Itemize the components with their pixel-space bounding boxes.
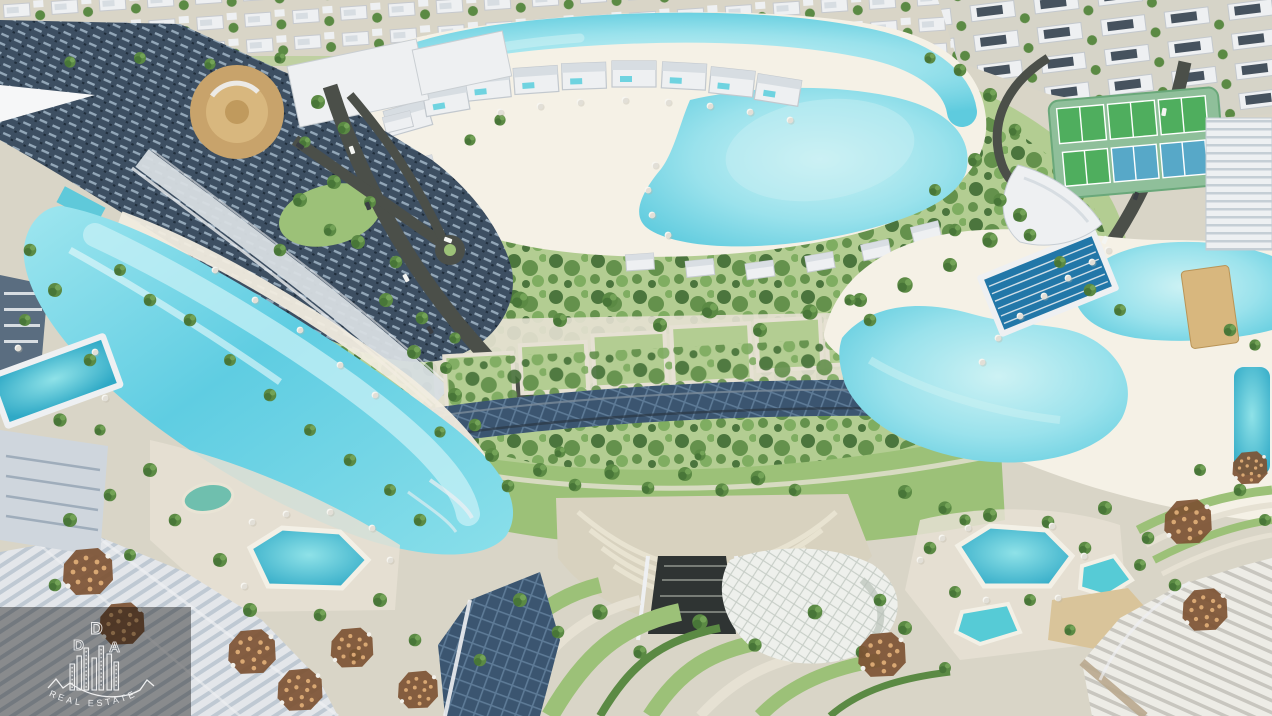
logo-letter-top: D [90,619,103,638]
tennis-court-complex [1048,87,1226,199]
logo-letter-left: D [73,637,85,654]
aerial-render: D D A REAL ESTATE [0,0,1272,716]
dda-watermark: D D A REAL ESTATE [0,607,191,716]
